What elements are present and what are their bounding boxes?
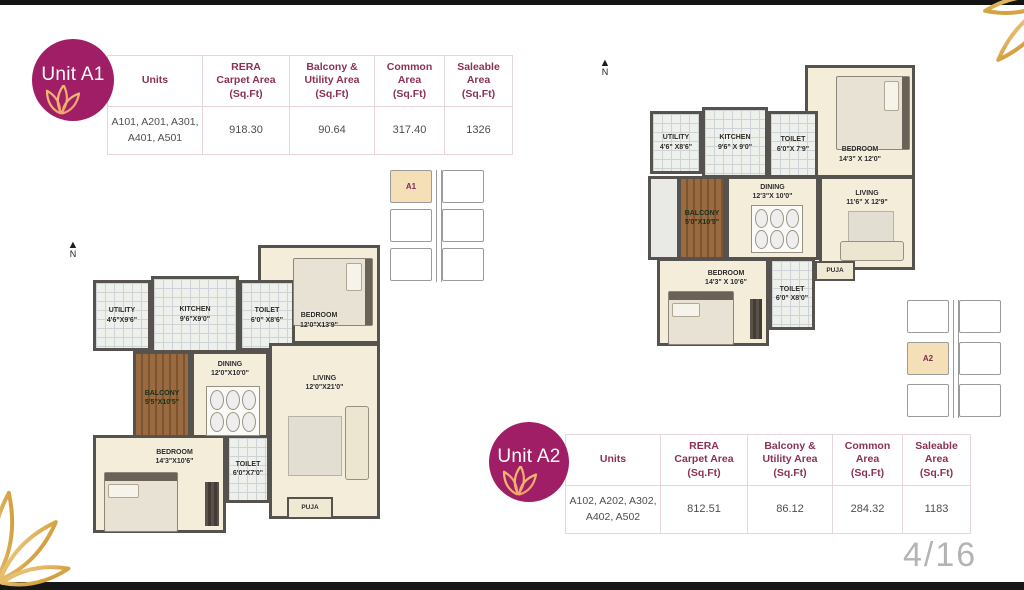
a1-col-units: Units bbox=[108, 56, 203, 107]
a1-dining-label: DINING 12'0"X10'0" bbox=[194, 360, 266, 379]
a2-toilet-top-label: TOILET 6'0"X 7'9" bbox=[777, 135, 809, 154]
lotus-icon bbox=[498, 466, 542, 496]
unit-a1-badge-label: Unit A1 bbox=[41, 64, 104, 86]
a1-saleable-value: 1326 bbox=[445, 107, 513, 155]
a1-kitchen: KITCHEN 9'6"X9'0" bbox=[151, 276, 239, 353]
a2-bedroom-bottom: BEDROOM 14'3" X 10'6" bbox=[657, 258, 769, 346]
north-arrow-a1: ▲ N bbox=[64, 240, 82, 259]
a1-living-label: LIVING 12'0"X21'0" bbox=[272, 374, 377, 393]
a2-dining-label: DINING 12'3"X 10'0" bbox=[729, 183, 816, 202]
a1-toilet-bottom: TOILET 6'0"X7'0" bbox=[226, 435, 270, 503]
a1-utility-label: UTILITY 4'6"X9'6" bbox=[107, 306, 137, 325]
unit-a1-floor-plan: BEDROOM 12'0"X13'9" UTILITY 4'6"X9'6" KI… bbox=[88, 240, 388, 536]
a1-col-common-area: Common Area (Sq.Ft) bbox=[375, 56, 445, 107]
a2-col-saleable-area: Saleable Area (Sq.Ft) bbox=[903, 435, 971, 486]
north-arrow-a2: ▲ N bbox=[596, 58, 614, 77]
a2-col-common-area: Common Area (Sq.Ft) bbox=[833, 435, 903, 486]
a2-living: LIVING 11'6" X 12'9" bbox=[819, 176, 915, 270]
a2-toilet-bottom-label: TOILET 6'0" X8'0" bbox=[776, 285, 808, 304]
a1-living: LIVING 12'0"X21'0" bbox=[269, 343, 380, 519]
a2-balcony: BALCONY 5'0"X10'5" bbox=[678, 176, 726, 260]
a1-kitchen-label: KITCHEN 9'6"X9'0" bbox=[179, 305, 210, 324]
a1-bedroom-bottom: BEDROOM 14'3"X10'6" bbox=[93, 435, 226, 533]
a2-kitchen-label: KITCHEN 9'6" X 9'0" bbox=[718, 133, 752, 152]
unit-a1-badge: Unit A1 bbox=[32, 39, 114, 121]
a1-puja-label: PUJA bbox=[301, 504, 318, 513]
a2-dining: DINING 12'3"X 10'0" bbox=[726, 176, 819, 260]
a2-common-value: 284.32 bbox=[833, 486, 903, 534]
a1-bedroom-bottom-label: BEDROOM 14'3"X10'6" bbox=[126, 448, 223, 467]
page-number: 4/16 bbox=[903, 536, 977, 575]
a2-key-plan: A2 bbox=[905, 298, 1005, 422]
a2-puja: PUJA bbox=[815, 261, 855, 281]
a1-col-rera-carpet-area: RERA Carpet Area (Sq.Ft) bbox=[203, 56, 290, 107]
unit-a2-badge: Unit A2 bbox=[489, 422, 569, 502]
unit-a2-badge-label: Unit A2 bbox=[497, 446, 560, 468]
north-label: N bbox=[596, 68, 614, 77]
a1-toilet-top: TOILET 6'0" X8'6" bbox=[239, 280, 295, 351]
a1-col-saleable-area: Saleable Area (Sq.Ft) bbox=[445, 56, 513, 107]
bottom-letterbox-bar bbox=[0, 582, 1024, 590]
a2-side-deck bbox=[648, 176, 680, 260]
a2-keyplan-highlight-label: A2 bbox=[923, 354, 933, 363]
a2-living-label: LIVING 11'6" X 12'9" bbox=[822, 189, 912, 208]
a2-units-value: A102, A202, A302, A402, A502 bbox=[566, 486, 661, 534]
north-label: N bbox=[64, 250, 82, 259]
a2-rera-value: 812.51 bbox=[661, 486, 748, 534]
a2-puja-label: PUJA bbox=[826, 267, 843, 276]
a1-keyplan-highlight-label: A1 bbox=[406, 182, 416, 191]
a2-saleable-value: 1183 bbox=[903, 486, 971, 534]
gold-lotus-decoration-top-right bbox=[930, 0, 1024, 122]
a1-toilet-bottom-label: TOILET 6'0"X7'0" bbox=[233, 460, 263, 479]
a2-kitchen: KITCHEN 9'6" X 9'0" bbox=[702, 107, 768, 178]
unit-a2-area-table: Units RERA Carpet Area (Sq.Ft) Balcony &… bbox=[565, 434, 971, 534]
lotus-icon bbox=[41, 85, 85, 115]
a1-col-balcony-utility-area: Balcony & Utility Area (Sq.Ft) bbox=[290, 56, 375, 107]
a1-puja: PUJA bbox=[287, 497, 333, 519]
a1-balcony-value: 90.64 bbox=[290, 107, 375, 155]
unit-a2-floor-plan: BEDROOM 14'3" X 12'0" UTILITY 4'6" X8'6"… bbox=[645, 63, 917, 349]
a1-balcony: BALCONY 5'5"X10'5" bbox=[133, 351, 191, 445]
a2-toilet-bottom: TOILET 6'0" X8'0" bbox=[769, 258, 815, 330]
a2-bedroom-top-label: BEDROOM 14'3" X 12'0" bbox=[839, 145, 881, 164]
a2-utility: UTILITY 4'6" X8'6" bbox=[650, 111, 702, 174]
a2-bedroom-top: BEDROOM 14'3" X 12'0" bbox=[805, 65, 915, 178]
a2-balcony-value: 86.12 bbox=[748, 486, 833, 534]
a1-bedroom-top-label: BEDROOM 12'0"X13'9" bbox=[300, 311, 338, 330]
a2-col-units: Units bbox=[566, 435, 661, 486]
a1-dining: DINING 12'0"X10'0" bbox=[191, 351, 269, 445]
top-letterbox-bar bbox=[0, 0, 1024, 5]
a2-utility-label: UTILITY 4'6" X8'6" bbox=[660, 133, 692, 152]
a2-balcony-label: BALCONY 5'0"X10'5" bbox=[685, 209, 720, 228]
a2-col-balcony-utility-area: Balcony & Utility Area (Sq.Ft) bbox=[748, 435, 833, 486]
a1-toilet-top-label: TOILET 6'0" X8'6" bbox=[251, 306, 283, 325]
a1-units-value: A101, A201, A301, A401, A501 bbox=[108, 107, 203, 155]
a2-bedroom-bottom-label: BEDROOM 14'3" X 10'6" bbox=[686, 269, 766, 288]
a2-toilet-top: TOILET 6'0"X 7'9" bbox=[768, 111, 818, 178]
a1-balcony-label: BALCONY 5'5"X10'5" bbox=[145, 389, 180, 408]
a1-key-plan: A1 bbox=[388, 168, 488, 286]
a1-rera-value: 918.30 bbox=[203, 107, 290, 155]
a1-common-value: 317.40 bbox=[375, 107, 445, 155]
unit-a1-area-table: Units RERA Carpet Area (Sq.Ft) Balcony &… bbox=[107, 55, 513, 155]
a2-col-rera-carpet-area: RERA Carpet Area (Sq.Ft) bbox=[661, 435, 748, 486]
a1-utility: UTILITY 4'6"X9'6" bbox=[93, 280, 151, 351]
